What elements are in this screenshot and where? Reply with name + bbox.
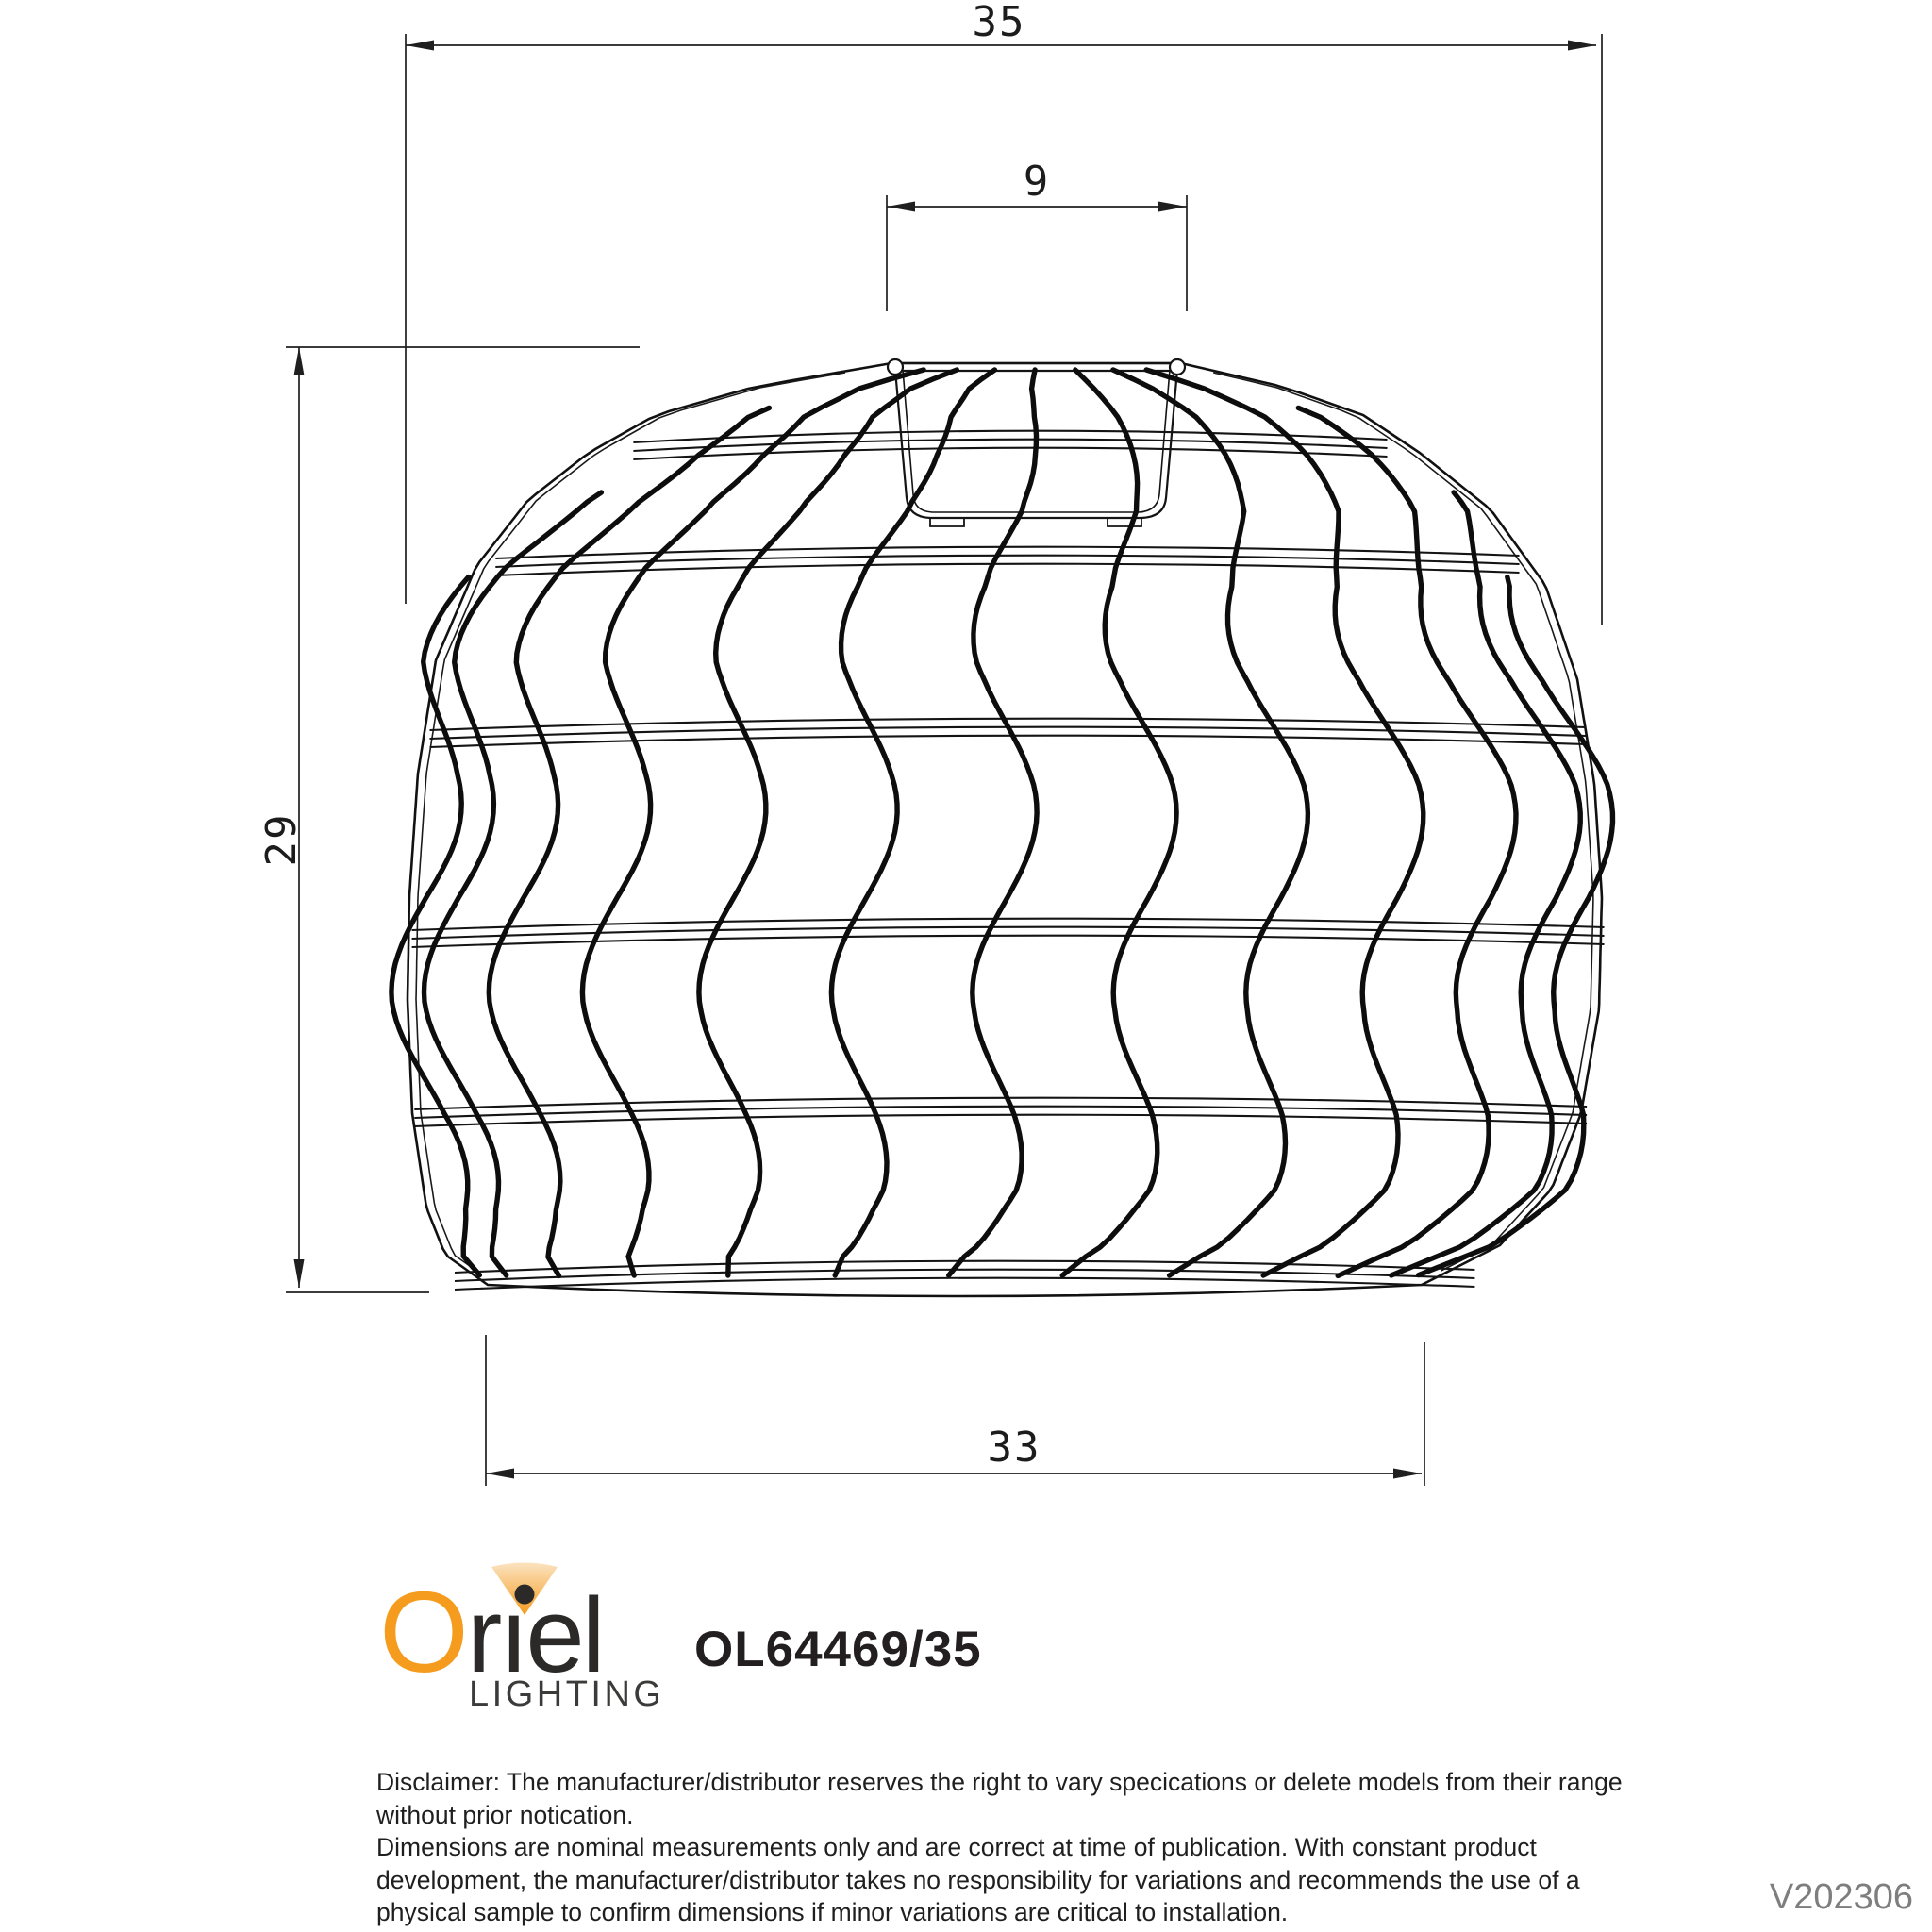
dimension-9: 9	[887, 158, 1187, 311]
disclaimer-line: Disclaimer: The manufacturer/distributor…	[376, 1766, 1645, 1799]
top-right-corner-lug	[1170, 359, 1185, 375]
oriel-logo: O rıel LIGHTING	[375, 1557, 658, 1722]
version-code: V202306	[1770, 1877, 1913, 1918]
disclaimer-line: without prior notication.	[376, 1799, 1645, 1832]
dimension-9-label: 9	[1024, 158, 1051, 206]
logo-letter-o: O	[379, 1568, 469, 1696]
disclaimer-line: development, the manufacturer/distributo…	[376, 1864, 1645, 1897]
logo-tagline: LIGHTING	[469, 1674, 658, 1714]
disclaimer-line: physical sample to confirm dimensions if…	[376, 1896, 1645, 1929]
dimension-33: 33	[486, 1335, 1424, 1486]
dimension-33-label: 33	[988, 1424, 1041, 1472]
disclaimer-block: Disclaimer: The manufacturer/distributor…	[376, 1766, 1645, 1929]
page: 35 9 29	[0, 0, 1932, 1932]
disclaimer-line: Dimensions are nominal measurements only…	[376, 1831, 1645, 1864]
oriel-logo-art: O rıel LIGHTING	[375, 1557, 658, 1722]
top-left-corner-lug	[888, 359, 903, 375]
dimension-29-label: 29	[258, 813, 306, 867]
dimension-35-label: 35	[973, 0, 1026, 46]
product-code: OL64469/35	[694, 1621, 982, 1678]
